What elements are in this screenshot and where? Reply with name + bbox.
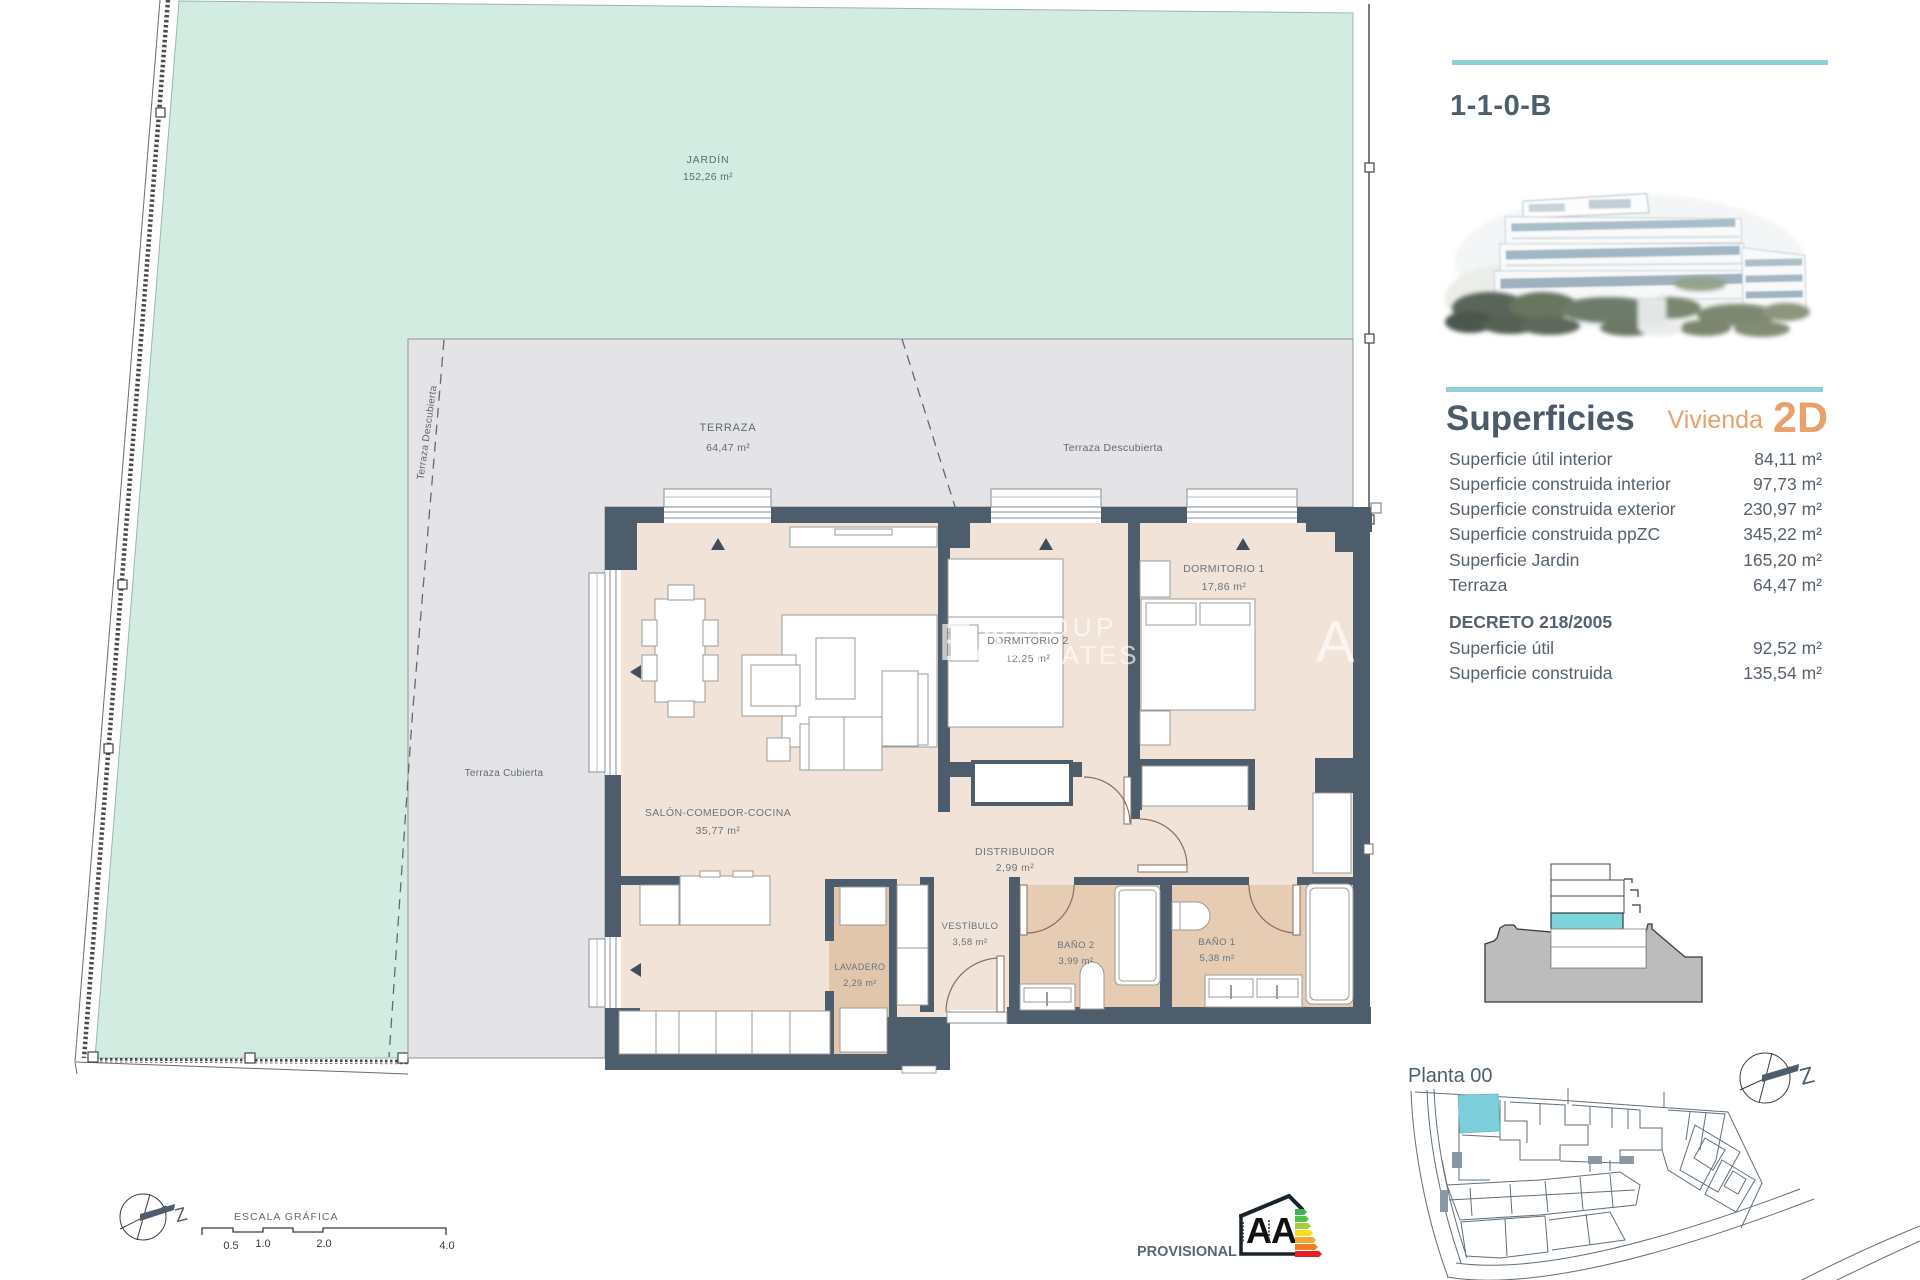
svg-text:64,47 m²: 64,47 m² (1753, 575, 1822, 595)
svg-text:1.0: 1.0 (255, 1238, 270, 1250)
svg-text:165,20 m²: 165,20 m² (1743, 550, 1822, 570)
svg-text:345,22 m²: 345,22 m² (1743, 524, 1822, 544)
svg-text:Superficie útil interior: Superficie útil interior (1449, 449, 1613, 469)
svg-text:SALÓN-COMEDOR-COCINA: SALÓN-COMEDOR-COCINA (645, 806, 791, 819)
svg-text:5,38 m²: 5,38 m² (1199, 953, 1234, 964)
svg-text:Superficie construida interior: Superficie construida interior (1449, 474, 1671, 494)
svg-text:135,54 m²: 135,54 m² (1743, 663, 1822, 683)
svg-text:Superficie construida ppZC: Superficie construida ppZC (1449, 524, 1660, 544)
svg-text:152,26 m²: 152,26 m² (683, 171, 733, 183)
svg-text:Z: Z (173, 1204, 190, 1227)
svg-text:DORMITORIO 1: DORMITORIO 1 (1183, 563, 1265, 575)
svg-text:Planta 00: Planta 00 (1408, 1065, 1493, 1087)
svg-text:3,58 m²: 3,58 m² (952, 937, 987, 948)
svg-text:3,99 m²: 3,99 m² (1058, 956, 1093, 967)
svg-text:Superficie Jardin: Superficie Jardin (1449, 550, 1579, 570)
svg-text:ESCALA GRÁFICA: ESCALA GRÁFICA (234, 1210, 338, 1223)
svg-text:35,77 m²: 35,77 m² (696, 825, 741, 837)
svg-text:Z: Z (1797, 1061, 1817, 1090)
svg-text:Terraza Descubierta: Terraza Descubierta (1063, 442, 1163, 454)
svg-text:2,99 m²: 2,99 m² (996, 862, 1034, 874)
svg-text:GROUP: GROUP (1000, 612, 1118, 642)
svg-text:84,11 m²: 84,11 m² (1754, 449, 1822, 469)
svg-text:Superficies: Superficies (1446, 399, 1635, 438)
svg-text:A: A (1246, 1210, 1272, 1251)
svg-text:1-1-0-B: 1-1-0-B (1450, 90, 1552, 122)
svg-text:VESTÍBULO: VESTÍBULO (942, 921, 999, 932)
svg-text:0.5: 0.5 (223, 1240, 238, 1252)
svg-text:97,73 m²: 97,73 m² (1753, 474, 1822, 494)
svg-text:2.0: 2.0 (316, 1238, 331, 1250)
svg-text:2D: 2D (1773, 394, 1828, 442)
svg-text:4.0: 4.0 (439, 1240, 454, 1252)
svg-text:Terraza Cubierta: Terraza Cubierta (465, 768, 544, 779)
svg-text:BAÑO 1: BAÑO 1 (1198, 937, 1235, 948)
svg-text:2,29 m²: 2,29 m² (843, 978, 876, 988)
svg-text:Superficie útil: Superficie útil (1449, 638, 1554, 658)
svg-text:LAVADERO: LAVADERO (835, 962, 886, 972)
svg-text:230,97 m²: 230,97 m² (1743, 499, 1822, 519)
svg-text:PROVISIONAL: PROVISIONAL (1137, 1244, 1237, 1260)
svg-text:A: A (1271, 1210, 1297, 1251)
svg-text:ESTATES: ESTATES (1004, 640, 1140, 670)
svg-text:64,47 m²: 64,47 m² (706, 442, 750, 454)
svg-text:EA: EA (938, 614, 1009, 672)
svg-text:DISTRIBUIDOR: DISTRIBUIDOR (975, 846, 1055, 858)
svg-text:Terraza: Terraza (1449, 575, 1508, 595)
svg-text:Superficie construida: Superficie construida (1449, 663, 1613, 683)
svg-text:BAÑO 2: BAÑO 2 (1057, 940, 1094, 951)
svg-text:17,86 m²: 17,86 m² (1202, 581, 1247, 593)
svg-text:Vivienda: Vivienda (1668, 406, 1764, 434)
svg-text:A: A (1316, 610, 1355, 675)
svg-text:DECRETO 218/2005: DECRETO 218/2005 (1449, 612, 1612, 632)
svg-text:92,52 m²: 92,52 m² (1753, 638, 1822, 658)
svg-text:Superficie construida exterior: Superficie construida exterior (1449, 499, 1676, 519)
svg-text:TERRAZA: TERRAZA (700, 422, 757, 434)
svg-text:JARDÍN: JARDÍN (687, 153, 730, 166)
